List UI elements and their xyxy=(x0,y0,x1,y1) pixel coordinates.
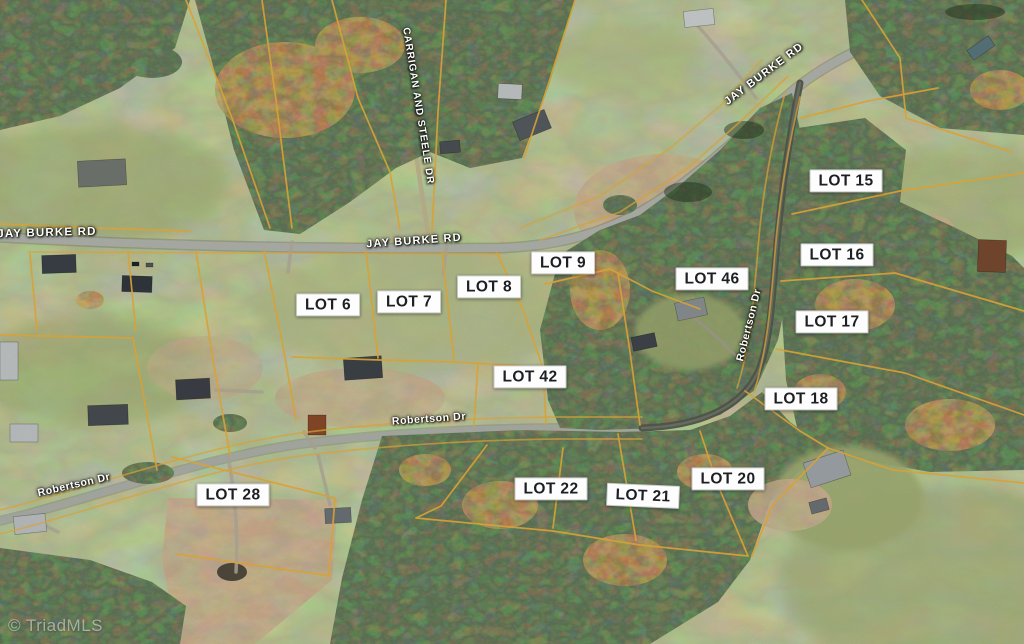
satellite-imagery xyxy=(0,0,1024,644)
aerial-plat-map: LOT 6 LOT 7 LOT 8 LOT 9 LOT 15 LOT 16 LO… xyxy=(0,0,1024,644)
lot-label-6: LOT 6 xyxy=(296,293,360,316)
photo-grain xyxy=(0,0,1024,644)
lot-label-16: LOT 16 xyxy=(801,243,874,266)
lot-label-22: LOT 22 xyxy=(515,477,588,500)
lot-label-15: LOT 15 xyxy=(810,169,883,192)
lot-label-7: LOT 7 xyxy=(377,290,441,313)
lot-label-9: LOT 9 xyxy=(531,251,595,274)
lot-label-46: LOT 46 xyxy=(676,267,749,290)
lot-label-28: LOT 28 xyxy=(197,483,270,506)
triadmls-watermark: © TriadMLS xyxy=(8,616,103,636)
lot-label-42: LOT 42 xyxy=(494,365,567,388)
lot-label-17: LOT 17 xyxy=(796,310,869,333)
lot-label-8: LOT 8 xyxy=(457,275,521,298)
lot-label-21: LOT 21 xyxy=(606,483,680,510)
lot-label-18: LOT 18 xyxy=(765,387,838,410)
lot-label-20: LOT 20 xyxy=(692,467,765,490)
